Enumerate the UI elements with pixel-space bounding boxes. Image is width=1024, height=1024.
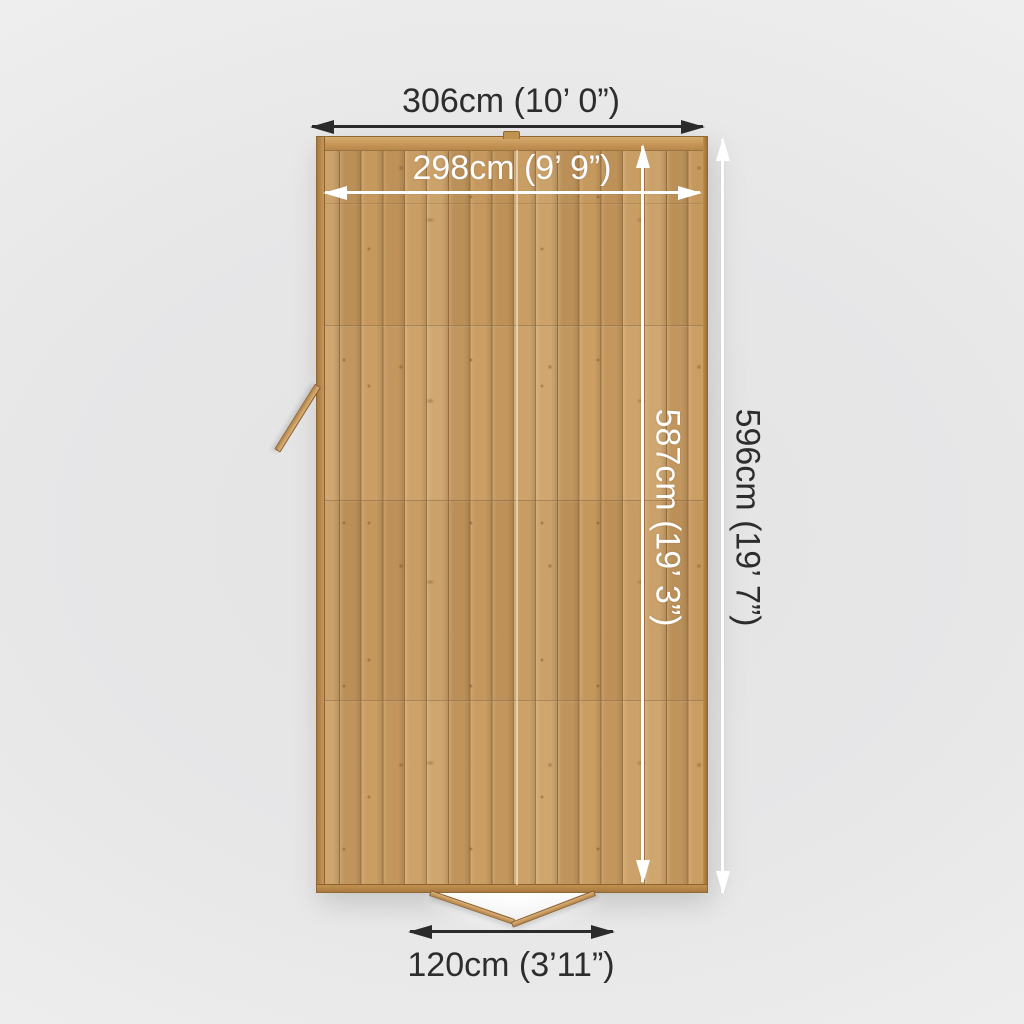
side-door-leaf <box>274 384 321 453</box>
arrow-down-icon <box>636 860 650 884</box>
arrow-right-icon <box>678 186 702 200</box>
shed-dimension-diagram: 306cm (10’ 0”) 298cm (9’ 9”) 587cm (19’ … <box>0 0 1024 1024</box>
floor-board-seam <box>324 203 703 205</box>
panel-joint <box>516 150 518 885</box>
arrow-up-icon <box>716 137 730 161</box>
floor-board-seam <box>324 500 703 502</box>
dimension-label-outer-depth: 596cm (19’ 7”) <box>727 398 766 638</box>
dimension-arrow-outer-width <box>312 125 703 128</box>
dimension-label-outer-width: 306cm (10’ 0”) <box>311 82 711 121</box>
arrow-left-icon <box>310 120 334 134</box>
arrow-right-icon <box>681 120 705 134</box>
dimension-label-inner-width: 298cm (9’ 9”) <box>312 149 712 188</box>
floor-board-seam <box>324 325 703 327</box>
arrow-right-icon <box>591 925 615 939</box>
arrow-up-icon <box>636 144 650 168</box>
dimension-arrow-door-width <box>410 930 613 933</box>
shed-wall-left <box>317 137 325 892</box>
arrow-left-icon <box>408 925 432 939</box>
dimension-arrow-outer-depth <box>721 139 724 893</box>
shed-wall-right <box>703 137 707 892</box>
dimension-label-door-width: 120cm (3’11”) <box>361 946 661 985</box>
dimension-label-inner-depth: 587cm (19’ 3”) <box>647 398 686 638</box>
roof-tab <box>503 131 520 139</box>
dimension-arrow-inner-depth <box>641 146 644 882</box>
shed-wall-bottom <box>317 884 707 892</box>
floor-board-seam <box>324 700 703 702</box>
arrow-down-icon <box>716 871 730 895</box>
arrow-left-icon <box>323 186 347 200</box>
